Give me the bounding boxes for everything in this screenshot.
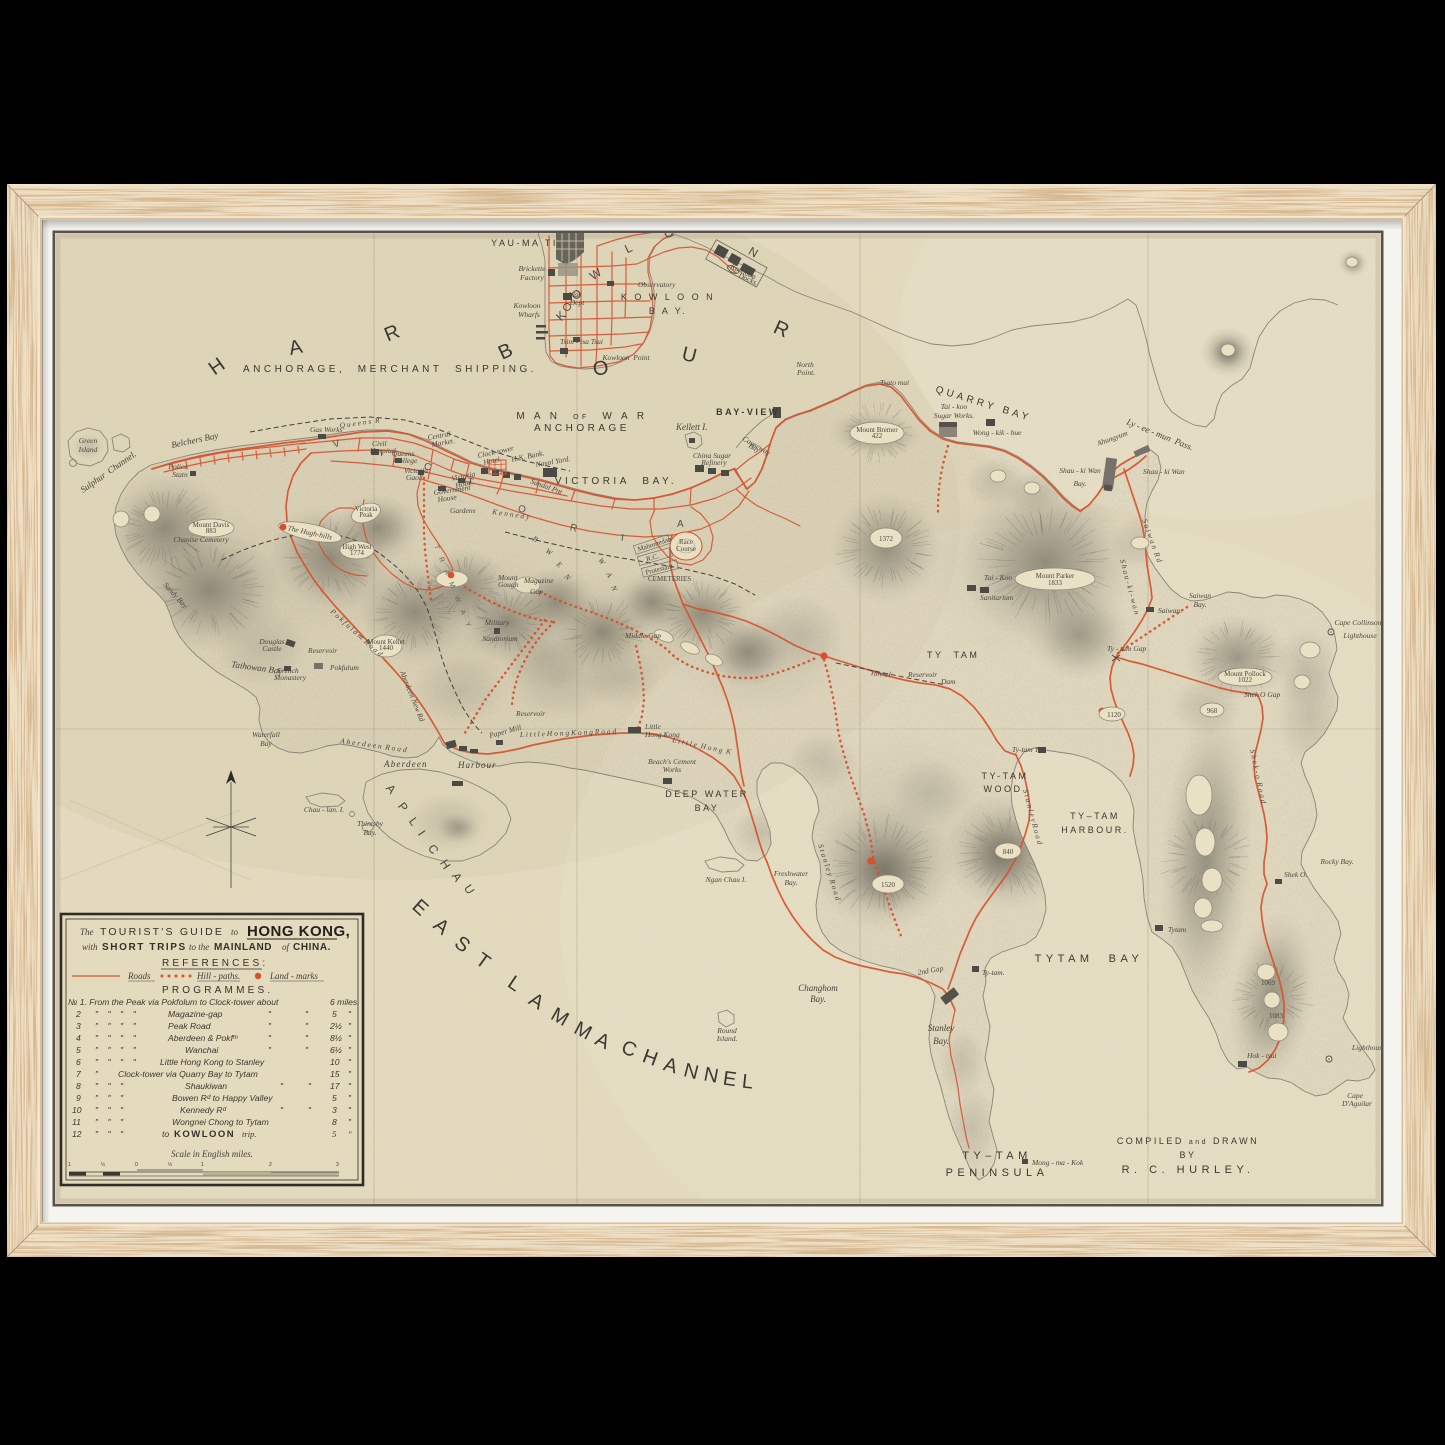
svg-text:Brickette: Brickette [518,264,546,273]
svg-text:Kowloon Point: Kowloon Point [601,353,650,362]
svg-text:1520: 1520 [881,881,896,889]
svg-text:Sanitarium: Sanitarium [980,593,1014,602]
svg-text:ANCHORAGE, MERCHANT SHIPPING: ANCHORAGE, MERCHANT SHIPPING. [243,364,537,375]
svg-text:2: 2 [269,1162,272,1168]
svg-text:1069: 1069 [1261,979,1276,987]
svg-text:Gaol: Gaol [406,473,421,482]
svg-text:Tai - Koo: Tai - Koo [984,573,1012,582]
svg-text:″ ″ ″ ″: ″ ″ ″ ″ [95,1021,137,1031]
svg-text:Chau - lan. I.: Chau - lan. I. [304,805,344,814]
svg-text:Gardens: Gardens [450,506,476,515]
svg-text:Wongnei Chong to Tytam: Wongnei Chong to Tytam [172,1117,269,1127]
svg-text:TY TAM: TY TAM [927,650,979,660]
svg-text:″ ″ ″: ″ ″ ″ [95,1081,124,1091]
svg-text:Shau - ki Wan: Shau - ki Wan [1059,466,1101,475]
svg-text:17: 17 [330,1081,341,1091]
svg-text:2: 2 [75,1009,81,1019]
svg-text:MAINLAND: MAINLAND [214,942,272,953]
svg-text:Bay.: Bay. [1073,479,1086,488]
svg-text:Monastery: Monastery [273,673,307,682]
svg-text:8: 8 [76,1081,81,1091]
svg-text:Ngan Chau I.: Ngan Chau I. [705,875,747,884]
svg-text:TYTAM BAY: TYTAM BAY [1035,953,1144,965]
svg-text:to: to [162,1129,169,1139]
svg-text:6: 6 [76,1057,81,1067]
svg-text:Sugar Works.: Sugar Works. [934,411,974,420]
svg-text:1833: 1833 [1048,579,1063,587]
svg-text:422: 422 [872,432,883,440]
svg-text:Middle Gap: Middle Gap [624,631,661,640]
svg-text:BY: BY [1179,1150,1196,1160]
svg-text:11: 11 [72,1117,81,1127]
svg-text:4: 4 [76,1033,81,1043]
svg-text:1120: 1120 [1107,711,1121,719]
svg-text:″ ″ ″: ″ ″ ″ [95,1117,124,1127]
svg-text:Saiwan.: Saiwan. [1158,606,1182,615]
svg-text:Tsim - tsa Tsui: Tsim - tsa Tsui [560,337,603,346]
svg-text:0: 0 [135,1162,138,1168]
svg-text:Refinery: Refinery [700,458,727,467]
svg-text:8½: 8½ [330,1033,342,1043]
svg-text:D'Aguilar: D'Aguilar [1341,1099,1372,1108]
svg-text:Works: Works [663,765,682,774]
svg-text:Stanley: Stanley [928,1023,955,1033]
svg-text:Military: Military [484,618,510,627]
svg-text:trip.: trip. [242,1129,257,1139]
svg-text:KOWLOON: KOWLOON [174,1129,235,1140]
svg-text:№ 1. From the Peak via Pokfolu: № 1. From the Peak via Pokfolum to Clock… [68,997,279,1007]
svg-text:Hok - tsui: Hok - tsui [1246,1051,1277,1060]
svg-text:Shek O.: Shek O. [1284,870,1307,879]
svg-text:10: 10 [330,1057,340,1067]
svg-text:CHINA.: CHINA. [293,942,331,953]
svg-text:Dam: Dam [940,677,956,686]
svg-text:BAY-VIEW: BAY-VIEW [716,407,780,417]
svg-text:Shaukiwan: Shaukiwan [185,1081,227,1091]
svg-text:K O W L O O N: K O W L O O N [621,292,715,302]
svg-text:Statn: Statn [172,470,188,479]
svg-text:Reservoir: Reservoir [907,670,937,679]
svg-text:YAU-MA TI.: YAU-MA TI. [491,238,563,248]
svg-text:WOOD: WOOD [984,784,1023,794]
svg-text:5: 5 [332,1093,337,1103]
svg-text:Bay.: Bay. [810,994,826,1004]
svg-text:Ty - tam Gap: Ty - tam Gap [1107,644,1146,653]
svg-text:TY–TAM: TY–TAM [1070,811,1120,821]
svg-text:Sanatorium: Sanatorium [482,634,518,643]
svg-text:Tytam: Tytam [1168,925,1187,934]
svg-text:Rocky Bay.: Rocky Bay. [1319,857,1353,866]
svg-text:Aberdeen: Aberdeen [383,759,428,769]
svg-text:5: 5 [76,1045,81,1055]
svg-text:Scale in English miles.: Scale in English miles. [171,1149,253,1159]
svg-text:Land - marks: Land - marks [269,971,318,981]
svg-text:Chanise Cemetery: Chanise Cemetery [173,535,229,544]
svg-text:Shau - ki Wan: Shau - ki Wan [1143,467,1185,476]
svg-text:Course: Course [676,545,696,553]
svg-text:TY-TAM: TY-TAM [981,771,1028,781]
svg-text:Bay.: Bay. [784,878,797,887]
svg-text:Pokfulum: Pokfulum [329,663,359,672]
svg-text:8: 8 [332,1117,337,1127]
svg-text:to the: to the [189,942,209,952]
svg-text:ANCHORAGE: ANCHORAGE [534,423,630,434]
svg-text:College: College [394,456,418,465]
svg-text:Kennedy Rᵈ: Kennedy Rᵈ [180,1105,227,1115]
svg-text:1022: 1022 [1238,676,1253,684]
svg-text:Gough: Gough [498,580,519,589]
svg-text:Reservoir: Reservoir [515,709,545,718]
svg-text:L: L [741,1071,754,1094]
svg-text:R. C. HURLEY.: R. C. HURLEY. [1122,1164,1255,1176]
svg-text:Magazine-gap: Magazine-gap [168,1009,223,1019]
svg-text:9: 9 [76,1093,81,1103]
svg-text:Saiwan: Saiwan [1189,591,1211,600]
svg-text:Peak Road: Peak Road [168,1021,211,1031]
svg-text:″ ″ ″: ″ ″ ″ [95,1105,124,1115]
svg-text:Gas Works: Gas Works [310,425,343,434]
svg-text:Wanchai: Wanchai [185,1045,219,1055]
svg-text:1372: 1372 [879,535,894,543]
svg-text:A: A [677,519,684,530]
svg-text:″ ″ ″: ″ ″ ″ [95,1129,124,1139]
svg-text:Ty-tam.: Ty-tam. [982,968,1005,977]
svg-text:Cape Collinson: Cape Collinson [1335,618,1382,627]
svg-text:Bay.: Bay. [1193,600,1206,609]
svg-text:840: 840 [1003,848,1014,856]
svg-text:15: 15 [330,1069,340,1079]
svg-text:968: 968 [1207,707,1218,715]
svg-text:Mong - ma - Kok: Mong - ma - Kok [1031,1158,1084,1167]
svg-text:1083: 1083 [1269,1012,1284,1020]
svg-text:Freshwater: Freshwater [773,869,808,878]
svg-text:12: 12 [72,1129,82,1139]
svg-text:Bowen Rᵈ to Happy Valley: Bowen Rᵈ to Happy Valley [172,1093,273,1103]
svg-text:TOURIST'S GUIDE: TOURIST'S GUIDE [100,926,224,938]
svg-text:CEMETERIES: CEMETERIES [648,575,691,583]
svg-text:Reservoir: Reservoir [307,646,337,655]
svg-text:Bay: Bay [260,739,272,748]
svg-text:Peak: Peak [359,511,373,519]
svg-text:Kowloon: Kowloon [512,301,540,310]
svg-text:HARBOUR.: HARBOUR. [1061,825,1129,835]
svg-text:VICTORIA BAY.: VICTORIA BAY. [555,476,677,487]
svg-text:Wharfs: Wharfs [518,310,540,319]
svg-text:3: 3 [336,1162,339,1168]
svg-text:PROGRAMMES.: PROGRAMMES. [162,985,273,996]
svg-text:Changhom: Changhom [798,983,838,993]
svg-text:TY–TAM: TY–TAM [962,1150,1032,1162]
svg-text:Kellett I.: Kellett I. [675,422,708,432]
svg-text:Lighthouse: Lighthouse [1351,1043,1386,1052]
svg-text:Tsato mui: Tsato mui [880,378,909,387]
svg-text:PENINSULA: PENINSULA [946,1167,1049,1179]
svg-text:Hong Kong: Hong Kong [644,730,680,739]
svg-text:COMPILED and DRAWN: COMPILED and DRAWN [1117,1136,1259,1146]
svg-text:5: 5 [332,1009,337,1019]
svg-text:The: The [80,927,94,937]
svg-text:Thintsby: Thintsby [357,819,384,828]
svg-text:Wong - kik - bue: Wong - kik - bue [973,428,1023,437]
svg-text:3: 3 [332,1105,337,1115]
svg-text:to: to [231,927,239,937]
svg-text:1774: 1774 [350,549,365,557]
svg-text:Little Hong Kong to Stanley: Little Hong Kong to Stanley [160,1057,265,1067]
svg-text:Waterfall: Waterfall [252,730,280,739]
svg-text:Roads: Roads [127,971,151,981]
svg-text:DEEP WATER: DEEP WATER [665,789,749,799]
svg-text:Clock-tower via Quarry Bay to: Clock-tower via Quarry Bay to Tytam [118,1069,258,1079]
svg-text:REFERENCES:: REFERENCES: [162,958,268,969]
svg-text:BAY: BAY [695,803,720,813]
svg-text:Shek O Gap: Shek O Gap [1244,690,1280,699]
svg-text:″ ″ ″ ″: ″ ″ ″ ″ [95,1045,137,1055]
svg-text:1: 1 [68,1162,71,1168]
svg-text:Observatory: Observatory [638,280,676,289]
svg-text:Island.: Island. [716,1034,738,1043]
svg-text:Green: Green [79,436,98,445]
svg-text:Aberdeen & Pokfᵐ: Aberdeen & Pokfᵐ [167,1033,238,1043]
svg-text:″: ″ [348,1129,352,1139]
svg-text:883: 883 [206,527,217,535]
svg-text:2½: 2½ [329,1021,342,1031]
svg-text:″ ″ ″ ″: ″ ″ ″ ″ [95,1033,137,1043]
svg-text:Island: Island [78,445,98,454]
svg-text:Tai - koo: Tai - koo [941,402,968,411]
svg-text:″ ″ ″: ″ ″ ″ [95,1093,124,1103]
svg-text:with: with [82,942,98,952]
svg-text:1: 1 [201,1162,204,1168]
svg-text:3: 3 [76,1021,81,1031]
svg-text:Lighthouse: Lighthouse [1342,631,1377,640]
svg-text:5: 5 [332,1129,337,1139]
svg-text:B A Y.: B A Y. [649,306,687,316]
svg-text:Magazine: Magazine [523,576,554,585]
svg-text:6 miles: 6 miles [330,997,358,1007]
svg-text:Castle: Castle [262,644,282,653]
svg-text:″ ″ ″ ″: ″ ″ ″ ″ [95,1057,137,1067]
svg-text:Ty-tam Tuk: Ty-tam Tuk [1012,745,1046,754]
svg-text:SHORT TRIPS: SHORT TRIPS [102,942,187,953]
svg-text:10: 10 [72,1105,82,1115]
svg-text:″ ″ ″ ″: ″ ″ ″ ″ [95,1009,137,1019]
svg-text:Dept: Dept [569,298,585,307]
svg-text:Bay.: Bay. [363,828,376,837]
svg-text:HONG KONG,: HONG KONG, [247,923,350,940]
svg-text:6½: 6½ [330,1045,342,1055]
svg-text:Harbour: Harbour [457,760,497,770]
svg-text:Factory: Factory [519,273,544,282]
svg-text:Hill - paths.: Hill - paths. [196,971,240,981]
svg-text:Gap: Gap [530,587,543,596]
svg-text:Bay.: Bay. [933,1036,949,1046]
svg-text:Point.: Point. [796,368,815,377]
